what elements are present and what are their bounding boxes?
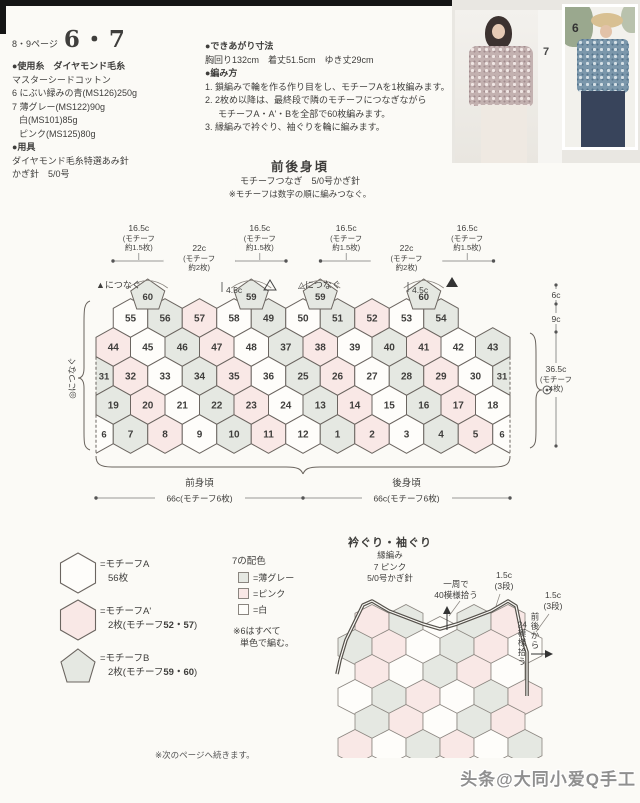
back-width-label: 66c(モチーフ6枚) [373, 494, 439, 504]
model-skirt [481, 105, 527, 163]
model-face [492, 24, 505, 39]
next-page-note: ※次のページへ続きます。 [155, 749, 255, 761]
legend-name-b: =モチーフB [100, 650, 149, 664]
measure-dot [492, 259, 495, 262]
motif-number: 36 [263, 372, 275, 383]
measure-sub: (モチーフ [244, 234, 276, 243]
motif-top-blue [577, 39, 629, 93]
photos-strip: 7 6 [452, 0, 640, 163]
motif-number: 6 [101, 430, 106, 441]
legend-count-text: 2枚(モチーフ [108, 667, 163, 678]
motif-number: 40 [384, 343, 396, 354]
measure-dot [554, 330, 557, 333]
open-triangle-mark [264, 280, 276, 290]
yarn-line: 6 にぶい緑みの青(MS126)250g [12, 87, 204, 101]
motif-number: 9 [197, 430, 203, 441]
page-title: 6・7 [64, 20, 128, 54]
measure-sub: 約1.5枚) [453, 242, 481, 252]
colorkey-item: =薄グレー [238, 571, 294, 584]
size-text: 胸回り132cm 着丈51.5cm ゆき丈29cm [205, 54, 465, 68]
motif-number: 59 [246, 292, 257, 303]
scan-edge-left [0, 0, 6, 34]
model-skirt [581, 91, 625, 147]
legend-count-text: ) [194, 667, 197, 678]
measure-sub: 約1.5枚) [246, 242, 274, 252]
white-swatch [238, 604, 249, 615]
motif-number: 11 [263, 430, 274, 441]
legend-count-text: 2枚(モチーフ [108, 620, 163, 631]
motif-number: 24 [280, 401, 292, 412]
page-ref: 8・9ページ [12, 37, 58, 50]
measure-sub: 約2枚) [396, 262, 418, 272]
motif-number: 38 [315, 343, 327, 354]
howto-step: 1. 鎖編みで輪を作る作り目をし、モチーフAを1枚編みます。 [205, 81, 465, 95]
legend-name-a2: =モチーフA' [100, 603, 151, 617]
scan-edge-top [0, 0, 452, 6]
motif-number: 35 [228, 372, 240, 383]
measure-value: 16.5c [249, 223, 271, 233]
motif-number: 12 [297, 430, 309, 441]
front-body-brace [96, 456, 303, 474]
legend-hexagon [61, 553, 96, 593]
pillar [538, 10, 562, 163]
motif-number: 54 [435, 314, 447, 325]
motif-number: 4 [438, 430, 444, 441]
measure-sub: (モチーフ [451, 234, 483, 243]
measure-dot [554, 444, 557, 447]
diagram-subtitle: モチーフつなぎ 5/0号かぎ針 [190, 175, 410, 188]
front-width-label: 66c(モチーフ6枚) [166, 494, 232, 504]
motif-number: 25 [297, 372, 309, 383]
motif-number: 8 [162, 430, 168, 441]
yarn-line: 7 薄グレー(MS122)90g [12, 101, 204, 115]
motif-number: 15 [384, 401, 396, 412]
motif-number: 56 [159, 314, 171, 325]
right-brace [530, 333, 542, 448]
measure-dot [554, 283, 557, 286]
watermark: 头条@大同小爱Q手工 [430, 765, 636, 790]
legend-count-text: 56枚 [108, 573, 128, 584]
legend-count-b: 2枚(モチーフ59・60) [108, 664, 197, 678]
measure-sub: (モチーフ [390, 254, 422, 263]
armhole-pickup-vertical: 前後から [529, 612, 541, 650]
motif-number: 52 [366, 314, 378, 325]
diagram-note: ※モチーフは数字の順に編みつなぐ。 [190, 188, 410, 201]
pickup-count: 24 [517, 620, 527, 629]
pattern-page: 8・9ページ 6・7 ●使用糸 ダイヤモンド毛糸 マスターシードコットン 6 に… [0, 0, 640, 803]
motif-number: 28 [401, 372, 413, 383]
colorkey-title: 7の配色 [232, 553, 266, 567]
instructions-block: ●できあがり寸法 胸回り132cm 着丈51.5cm ゆき丈29cm ●編み方 … [205, 40, 465, 135]
photo-label-7: 7 [543, 46, 549, 58]
neckline-edging-diagram [330, 590, 640, 758]
motif-number: 3 [404, 430, 410, 441]
howto-step: 3. 縁編みで衿ぐり、袖ぐりを輪に編みます。 [205, 121, 465, 135]
join-circle-mark-center [546, 389, 549, 392]
back-body-brace [303, 456, 510, 474]
front-body-label: 前身頃 [185, 477, 214, 489]
measure-dot [319, 259, 322, 262]
left-edge-join-label: ◎につなぐ [67, 357, 77, 398]
legend-count-bold: 52・57 [163, 620, 194, 631]
motif-number: 44 [108, 343, 120, 354]
motif-number: 13 [315, 401, 327, 412]
measure-value: 22c [192, 243, 206, 253]
tools-header: ●用具 [12, 141, 204, 155]
diagram-title: 前後身頃 [190, 159, 410, 175]
colorkey-label: =ピンク [253, 587, 285, 600]
neck-sub: 縁編み [334, 550, 446, 562]
colorkey-label: =薄グレー [253, 571, 294, 584]
legend-pentagon [61, 649, 95, 682]
legend-count-a2: 2枚(モチーフ52・57) [108, 617, 197, 631]
edge-measure: 1.5c [487, 570, 521, 581]
howto-step: モチーフA・A'・Bを全部で60枚編みます。 [205, 108, 465, 122]
side-measure-9c: 9c [552, 314, 562, 324]
motif-number: 45 [142, 343, 154, 354]
yarn-line: マスターシードコットン [12, 74, 204, 88]
howto-step: 2. 2枚め以降は、最終段で隣のモチーフにつなぎながら [205, 94, 465, 108]
motif-number: 5 [473, 430, 479, 441]
page-title-line: 8・9ページ 6・7 [12, 20, 204, 54]
motif-number: 2 [369, 430, 375, 441]
neck-depth-left: 4.5c [226, 285, 243, 295]
measure-dot [284, 259, 287, 262]
motif-number: 55 [125, 314, 137, 325]
motif-number: 43 [487, 343, 499, 354]
size-header: ●できあがり寸法 [205, 40, 465, 54]
yarn-line: ピンク(MS125)80g [12, 128, 204, 142]
back-body-label: 後身頃 [392, 477, 421, 489]
motif-number: 19 [108, 401, 120, 412]
legend-hexagon [61, 600, 96, 640]
measure-sub: (モチーフ [183, 254, 215, 263]
motif-number: 41 [418, 343, 430, 354]
motif-number: 42 [453, 343, 465, 354]
measure-sub: 約2枚) [188, 262, 210, 272]
front-back-motif-diagram: 5556575849505152535444454647483738394041… [0, 210, 640, 520]
measure-dot [111, 259, 114, 262]
neck-diagram-header: 衿ぐり・袖ぐり 縁編み 7 ピンク 5/0号かぎ針 [334, 536, 446, 585]
motif-number: 23 [246, 401, 258, 412]
photo-model-6: 6 [562, 4, 638, 150]
measure-value: 16.5c [457, 223, 479, 233]
motif-number: 57 [194, 314, 206, 325]
motif-number: 32 [125, 372, 137, 383]
motif-number: 6 [499, 430, 504, 441]
motif-number: 31 [497, 372, 508, 383]
materials-block: 8・9ページ 6・7 ●使用糸 ダイヤモンド毛糸 マスターシードコットン 6 に… [12, 20, 204, 182]
legend-count-a: 56枚 [108, 570, 128, 584]
greenery [621, 7, 635, 33]
yarn-header: ●使用糸 ダイヤモンド毛糸 [12, 60, 204, 74]
legend-count-text: ) [194, 620, 197, 631]
motif-top-gray-pink [469, 46, 533, 106]
motif-number: 51 [332, 314, 344, 325]
measure-sub: (モチーフ [330, 234, 362, 243]
photo-inner: 6 [565, 7, 635, 147]
filled-triangle-mark [446, 277, 458, 287]
colorkey-item: =白 [238, 603, 267, 616]
side-measure-6c: 6c [552, 290, 562, 300]
motif-number: 1 [335, 430, 341, 441]
legend-name-a: =モチーフA [100, 556, 149, 570]
measure-dot [301, 496, 304, 499]
motif-number: 16 [418, 401, 430, 412]
diagram-header: 前後身頃 モチーフつなぎ 5/0号かぎ針 ※モチーフは数字の順に編みつなぐ。 [190, 159, 410, 201]
photo-model-7: 7 [455, 10, 562, 163]
neck-depth-right: 4.5c [412, 285, 429, 295]
neck-edge-label: 1.5c (3段) [487, 570, 521, 592]
motif-number: 49 [263, 314, 275, 325]
tools-line: かぎ針 5/0号 [12, 168, 204, 182]
motif-number: 20 [142, 401, 154, 412]
photo-label-6: 6 [572, 21, 579, 35]
gray-swatch [238, 572, 249, 583]
motif-number: 14 [349, 401, 361, 412]
measure-sub: (モチーフ [123, 234, 155, 243]
motif-number: 50 [297, 314, 309, 325]
model-face [600, 25, 612, 38]
colorkey-note: 単色で編む。 [240, 636, 294, 649]
motif-number: 18 [487, 401, 499, 412]
motif-number: 39 [349, 343, 361, 354]
measure-dot [508, 496, 511, 499]
pink-swatch [238, 588, 249, 599]
measure-value: 16.5c [128, 223, 150, 233]
motif-number: 30 [470, 372, 482, 383]
motif-number: 26 [332, 372, 344, 383]
motif-number: 46 [177, 343, 189, 354]
motif-number: 37 [280, 343, 292, 354]
measure-value: 16.5c [336, 223, 358, 233]
motif-number: 10 [228, 430, 240, 441]
measure-sub: 約1.5枚) [125, 242, 153, 252]
join-left-label: ▲につなぐ [96, 280, 141, 290]
motif-number: 59 [315, 292, 326, 303]
tools-line: ダイヤモンド毛糸特選あみ針 [12, 155, 204, 169]
motif-number: 7 [128, 430, 134, 441]
neck-title: 衿ぐり・袖ぐり [334, 536, 446, 550]
motif-number: 60 [142, 292, 153, 303]
armhole-pickup-vertical: 24模様拾う [516, 620, 528, 667]
colorkey-item: =ピンク [238, 587, 285, 600]
motif-number: 17 [453, 401, 465, 412]
neck-sub: 7 ピンク [334, 562, 446, 574]
measure-sub: 約1.5枚) [332, 242, 360, 252]
motif-number: 21 [177, 401, 189, 412]
side-measure-sub: (モチーフ [540, 375, 572, 384]
motif-number: 34 [194, 372, 206, 383]
motif-number: 29 [435, 372, 447, 383]
pickup-text: 模様拾う [517, 629, 527, 667]
measure-dot [94, 496, 97, 499]
legend-count-bold: 59・60 [163, 667, 194, 678]
motif-number: 33 [159, 372, 171, 383]
motif-number: 58 [228, 314, 240, 325]
join-mid-label: △につなぐ [298, 280, 341, 290]
yarn-line: 白(MS101)85g [12, 114, 204, 128]
colorkey-label: =白 [253, 603, 267, 616]
arrow-head-up [443, 606, 451, 614]
motif-number: 48 [246, 343, 258, 354]
left-brace [78, 301, 90, 450]
neck-pickup-line: 一周で [422, 579, 490, 590]
measure-dot [554, 302, 557, 305]
side-measure-36-5c: 36.5c [546, 364, 568, 374]
measure-value: 22c [400, 243, 414, 253]
howto-header: ●編み方 [205, 67, 465, 81]
motif-number: 53 [401, 314, 413, 325]
motif-number: 22 [211, 401, 223, 412]
motif-number: 31 [99, 372, 110, 383]
motif-number: 27 [366, 372, 378, 383]
motif-number: 47 [211, 343, 223, 354]
arrow-head-right [545, 650, 553, 658]
